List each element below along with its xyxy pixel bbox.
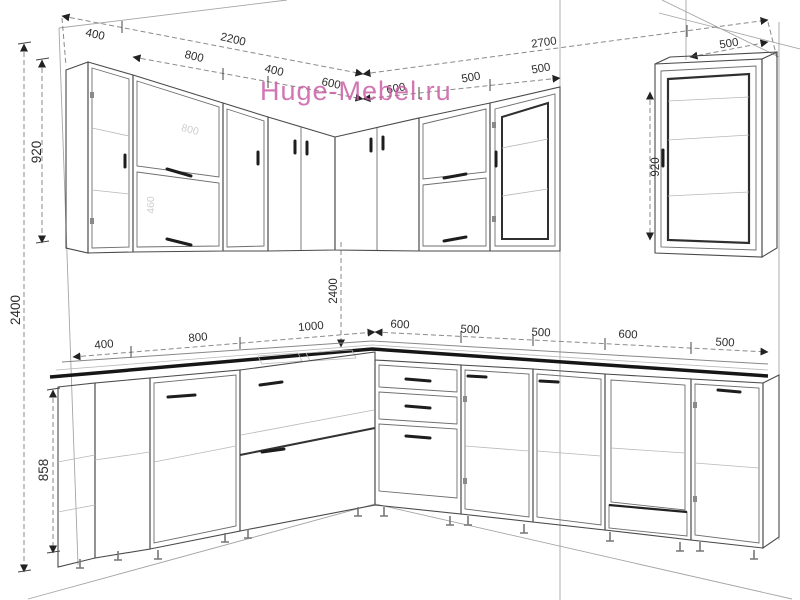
- dim-upper-600a: 600: [320, 76, 341, 92]
- kitchen-layout-diagram: 400 2200 800 400 600 600 500 500 2700 50…: [0, 0, 800, 600]
- dim-h2400-mid: 2400: [328, 278, 340, 304]
- dim-h858-left: 858: [36, 459, 51, 482]
- tall-glass-cabinet: [655, 52, 777, 257]
- dim-upper-500b: 500: [531, 61, 552, 76]
- dim-base-600b: 600: [618, 329, 638, 342]
- ghost-label-460: 460: [145, 196, 157, 214]
- upper-cabinets-left-wall: [66, 62, 335, 253]
- dim-h920-right: 920: [650, 157, 662, 176]
- dim-base-500c: 500: [715, 337, 735, 350]
- dim-upper-400: 400: [263, 63, 285, 79]
- dim-base-400: 400: [94, 338, 114, 352]
- dim-upper-500a: 500: [461, 70, 482, 85]
- dim-base-800: 800: [188, 331, 208, 345]
- dim-h2400-left: 2400: [8, 295, 23, 325]
- dim-base-600a: 600: [390, 319, 410, 332]
- dim-upper-800: 800: [183, 49, 205, 65]
- dim-base-1000: 1000: [298, 320, 325, 334]
- dimension-lines: [18, 16, 777, 572]
- dim-top-2200: 2200: [219, 31, 247, 48]
- upper-cabinets-right-wall: [335, 87, 560, 251]
- cabinet-legs: [76, 507, 758, 568]
- dim-base-500b: 500: [531, 327, 551, 340]
- diagram-canvas: 400 2200 800 400 600 600 500 500 2700 50…: [0, 0, 800, 600]
- dim-top-400: 400: [84, 27, 105, 43]
- ghost-label-800: 800: [180, 122, 200, 138]
- countertop: [50, 341, 768, 377]
- door-hinges: [90, 92, 697, 502]
- dimension-labels: 400 2200 800 400 600 600 500 500 2700 50…: [8, 27, 739, 481]
- dim-top-500: 500: [719, 37, 740, 52]
- dim-h920-left: 920: [29, 141, 44, 164]
- dim-base-500a: 500: [460, 324, 480, 337]
